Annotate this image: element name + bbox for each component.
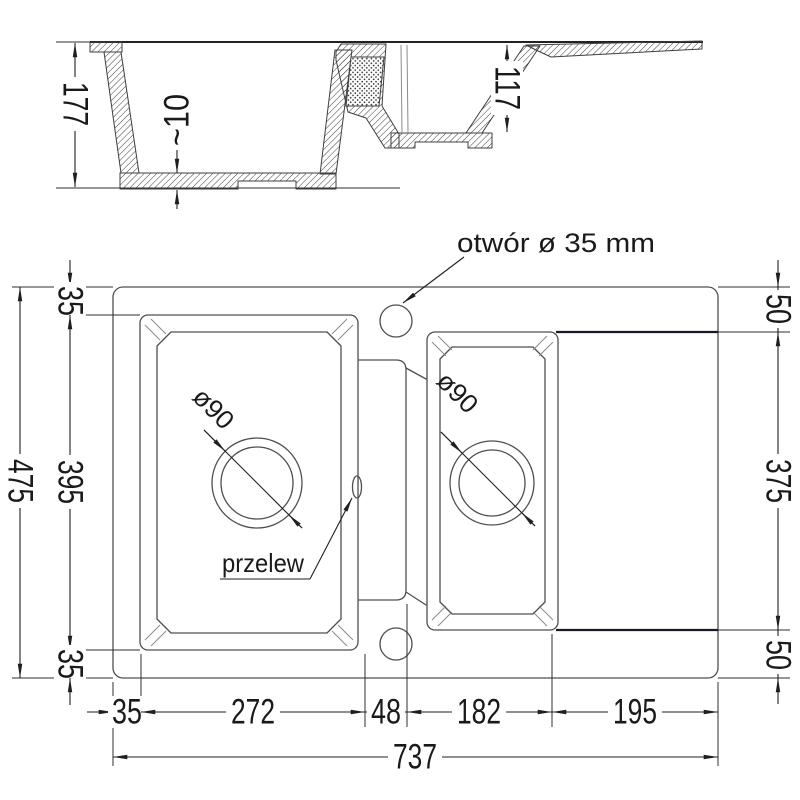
dim-section-depth-small: 117 xyxy=(488,66,527,110)
main-bowl xyxy=(140,315,362,650)
center-deck xyxy=(358,305,426,660)
drawing-canvas: 177 ~10 117 xyxy=(0,0,800,800)
dim-left-bowl: 395 xyxy=(51,460,90,504)
annotations: otwór ø 35 mm ø90 ø90 przelew xyxy=(187,228,655,579)
sink-technical-drawing: 177 ~10 117 xyxy=(0,0,800,800)
dim-bottom-overall: 737 xyxy=(393,738,437,777)
section-drainer-slab xyxy=(526,41,702,57)
dim-right-bottom: 50 xyxy=(759,640,798,670)
section-small-floor xyxy=(391,133,492,148)
section-bore-line xyxy=(407,45,408,132)
dim-bottom-bowl-main: 272 xyxy=(231,693,275,732)
section-left-flange xyxy=(90,42,122,52)
dim-section-depth-main: 177 xyxy=(56,82,95,126)
faucet-hole-label: otwór ø 35 mm xyxy=(457,228,655,258)
dim-left-overall: 475 xyxy=(1,459,40,503)
dims-bottom: 35 272 48 182 195 737 xyxy=(87,693,718,777)
deck-outline xyxy=(358,360,406,600)
overflow-label: przelew xyxy=(222,548,304,578)
dim-right-middle: 375 xyxy=(759,459,798,503)
dim-bottom-drainer: 195 xyxy=(613,693,657,732)
main-bowl-corner-bevels xyxy=(145,319,353,646)
sink-outline xyxy=(113,287,718,678)
section-bore-line xyxy=(401,45,402,132)
main-bowl-inner xyxy=(157,332,341,633)
plan-view: otwór ø 35 mm ø90 ø90 przelew xyxy=(1,228,798,777)
dim-bottom-margin-left: 35 xyxy=(112,693,142,732)
dim-right-top: 50 xyxy=(759,294,798,324)
main-bowl-rim xyxy=(140,315,358,650)
section-view: 177 ~10 117 xyxy=(56,41,704,209)
section-main-floor xyxy=(120,173,336,189)
section-left-wall xyxy=(104,52,139,173)
overflow-hole xyxy=(353,476,362,498)
main-drain-label: ø90 xyxy=(187,382,241,436)
dim-left-bottom: 35 xyxy=(51,649,90,679)
dim-left-top: 35 xyxy=(51,286,90,316)
dim-section-floor-thickness: ~10 xyxy=(158,94,197,146)
dim-bottom-divider: 48 xyxy=(371,693,401,732)
dims-right: 50 375 50 xyxy=(759,260,798,704)
dim-bottom-bowl-small: 182 xyxy=(457,693,501,732)
dims-left: 475 35 395 35 xyxy=(1,260,90,705)
small-drain-label: ø90 xyxy=(431,366,485,420)
faucet-hole-top xyxy=(380,305,412,337)
section-divider-core xyxy=(346,57,384,106)
